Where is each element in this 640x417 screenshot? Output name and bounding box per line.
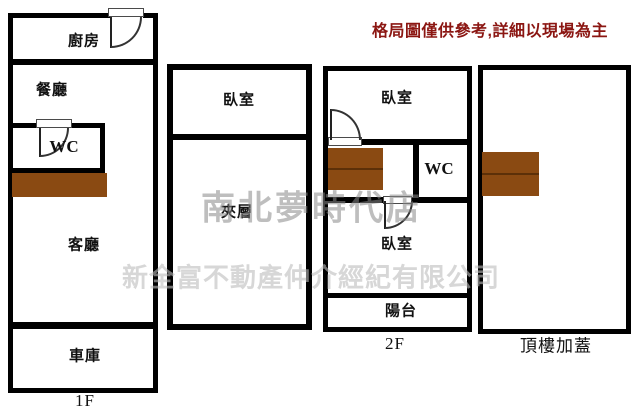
wall-living-garage (8, 322, 158, 329)
floorplan-1f-outline (8, 13, 158, 393)
stairs-divider-rooftop (482, 173, 539, 175)
room-label-garage: 車庫 (69, 345, 101, 366)
floor-label-1f: 1F (75, 391, 95, 411)
room-label-loft: 夾層 (221, 201, 253, 222)
room-label-wc-1f: WC (49, 137, 78, 157)
floor-label-2f: 2F (385, 334, 405, 354)
room-label-kitchen: 廚房 (68, 30, 100, 51)
room-label-living: 客廳 (68, 234, 100, 255)
floorplan-rooftop-outline (478, 65, 631, 334)
wc-door-frame-1f (36, 119, 72, 128)
wall-kitchen-dining (8, 59, 158, 65)
room-label-bedroom-mezzanine: 臥室 (223, 89, 255, 110)
disclaimer-text: 格局圖僅供參考,詳細以現場為主 (372, 17, 608, 41)
room-label-bedroom-back: 臥室 (381, 233, 413, 254)
room-label-balcony: 陽台 (385, 300, 417, 321)
room-label-dining: 餐廳 (36, 79, 68, 100)
stairs-block-1f (12, 173, 107, 197)
wall-2f-bedroom-balcony (323, 293, 472, 298)
floorplan-canvas: 格局圖僅供參考,詳細以現場為主 廚房 餐廳 WC 客廳 車庫 1F 臥室 夾層 … (0, 0, 640, 417)
kitchen-door-frame (108, 8, 144, 17)
wall-bedroom-loft (167, 134, 312, 140)
wall-2f-wc-divider (413, 139, 419, 203)
room-label-bedroom-front: 臥室 (381, 87, 413, 108)
floor-label-rooftop: 頂樓加蓋 (520, 332, 592, 357)
stairs-divider-2f (328, 168, 383, 170)
room-label-wc-2f: WC (424, 159, 453, 179)
